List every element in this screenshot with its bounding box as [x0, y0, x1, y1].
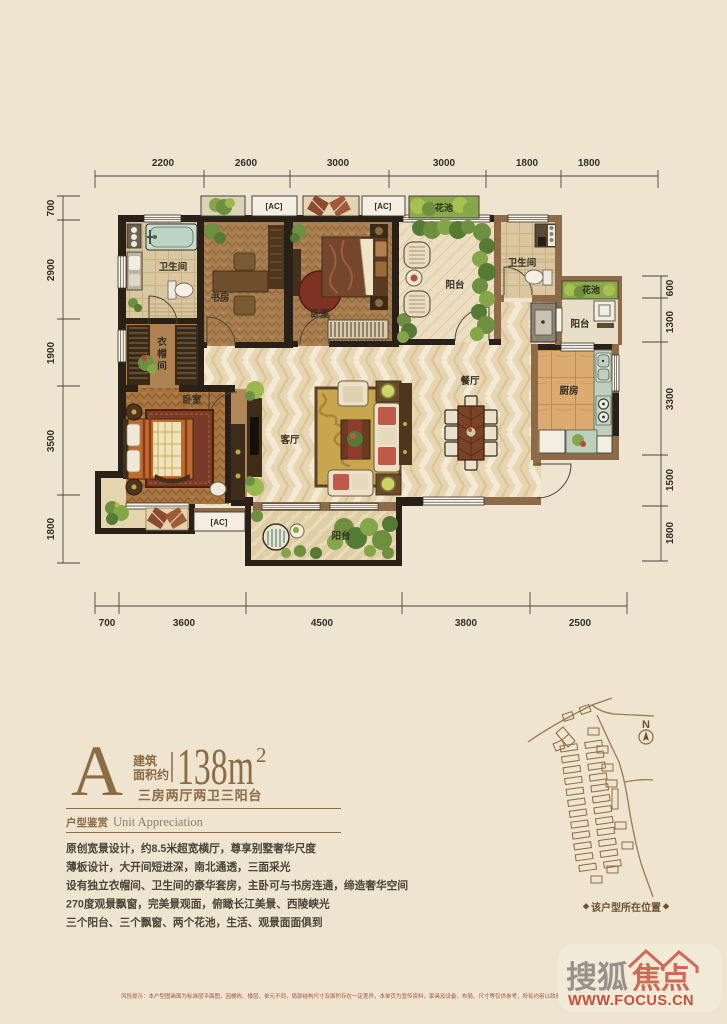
svg-text:2900: 2900	[46, 258, 57, 281]
svg-text:1800: 1800	[578, 158, 601, 169]
svg-text:面积约: 面积约	[133, 767, 169, 782]
svg-text:A: A	[71, 731, 123, 811]
svg-text:建筑: 建筑	[132, 753, 157, 768]
svg-text:餐厅: 餐厅	[459, 375, 480, 387]
svg-text:搜狐: 搜狐	[566, 960, 628, 995]
svg-text:设有独立衣帽间、卫生间的豪华套房，主卧可与书房连通，缔造奢华: 设有独立衣帽间、卫生间的豪华套房，主卧可与书房连通，缔造奢华空间	[66, 879, 408, 892]
svg-text:三房两厅两卫三阳台: 三房两厅两卫三阳台	[138, 788, 262, 803]
svg-text:卧室: 卧室	[310, 308, 330, 320]
svg-text:薄板设计，大开间短进深，南北通透，三面采光: 薄板设计，大开间短进深，南北通透，三面采光	[65, 861, 291, 874]
svg-text:270度观景飘窗，完美景观面，俯瞰长江美景、西陵峡光: 270度观景飘窗，完美景观面，俯瞰长江美景、西陵峡光	[66, 898, 330, 911]
svg-text:花池: 花池	[582, 284, 600, 295]
svg-text:1300: 1300	[665, 310, 676, 333]
svg-text:书房: 书房	[210, 292, 229, 304]
svg-text:3000: 3000	[327, 158, 350, 169]
svg-text:焦点: 焦点	[632, 961, 690, 995]
svg-text:衣: 衣	[157, 336, 167, 348]
svg-text:2200: 2200	[152, 158, 175, 169]
svg-text:WWW.FOCUS.CN: WWW.FOCUS.CN	[568, 993, 694, 1009]
svg-text:600: 600	[665, 279, 676, 296]
svg-text:2500: 2500	[569, 618, 592, 629]
svg-text:700: 700	[99, 618, 116, 629]
svg-text:3000: 3000	[433, 158, 456, 169]
svg-text:1800: 1800	[516, 158, 539, 169]
svg-text:卫生间: 卫生间	[159, 261, 188, 273]
svg-text:帽: 帽	[157, 348, 167, 360]
svg-text:3500: 3500	[46, 429, 57, 452]
svg-text:卫生间: 卫生间	[508, 257, 537, 269]
svg-text:2600: 2600	[235, 158, 258, 169]
svg-text:阳台: 阳台	[570, 318, 590, 330]
svg-text:3600: 3600	[173, 618, 196, 629]
svg-text:1800: 1800	[665, 521, 676, 544]
svg-text:700: 700	[46, 199, 57, 216]
svg-text:3800: 3800	[455, 618, 478, 629]
svg-text:阳台: 阳台	[331, 530, 351, 542]
svg-text:4500: 4500	[311, 618, 334, 629]
svg-text:2: 2	[256, 743, 267, 767]
svg-text:[AC]: [AC]	[211, 518, 228, 527]
svg-text:N: N	[642, 719, 650, 731]
svg-text:3300: 3300	[665, 387, 676, 410]
svg-text:花池: 花池	[435, 202, 453, 213]
svg-text:卧室: 卧室	[182, 394, 202, 406]
svg-text:该户型所在位置: 该户型所在位置	[591, 901, 661, 914]
svg-text:1500: 1500	[665, 468, 676, 491]
svg-text:Unit Appreciation: Unit Appreciation	[113, 815, 204, 829]
svg-text:1900: 1900	[46, 341, 57, 364]
svg-text:厨房: 厨房	[559, 385, 578, 397]
svg-text:1800: 1800	[46, 517, 57, 540]
svg-text:[AC]: [AC]	[266, 202, 283, 211]
svg-text:户型鉴赏: 户型鉴赏	[65, 816, 108, 829]
svg-text:阳台: 阳台	[445, 279, 465, 291]
svg-text:原创宽景设计，约8.5米超宽横厅，尊享别墅奢华尺度: 原创宽景设计，约8.5米超宽横厅，尊享别墅奢华尺度	[66, 842, 316, 855]
svg-text:[AC]: [AC]	[375, 202, 392, 211]
svg-text:三个阳台、三个飘窗、两个花池，生活、观景面面俱到: 三个阳台、三个飘窗、两个花池，生活、观景面面俱到	[66, 916, 323, 929]
svg-text:客厅: 客厅	[279, 434, 300, 446]
svg-text:间: 间	[157, 360, 167, 372]
